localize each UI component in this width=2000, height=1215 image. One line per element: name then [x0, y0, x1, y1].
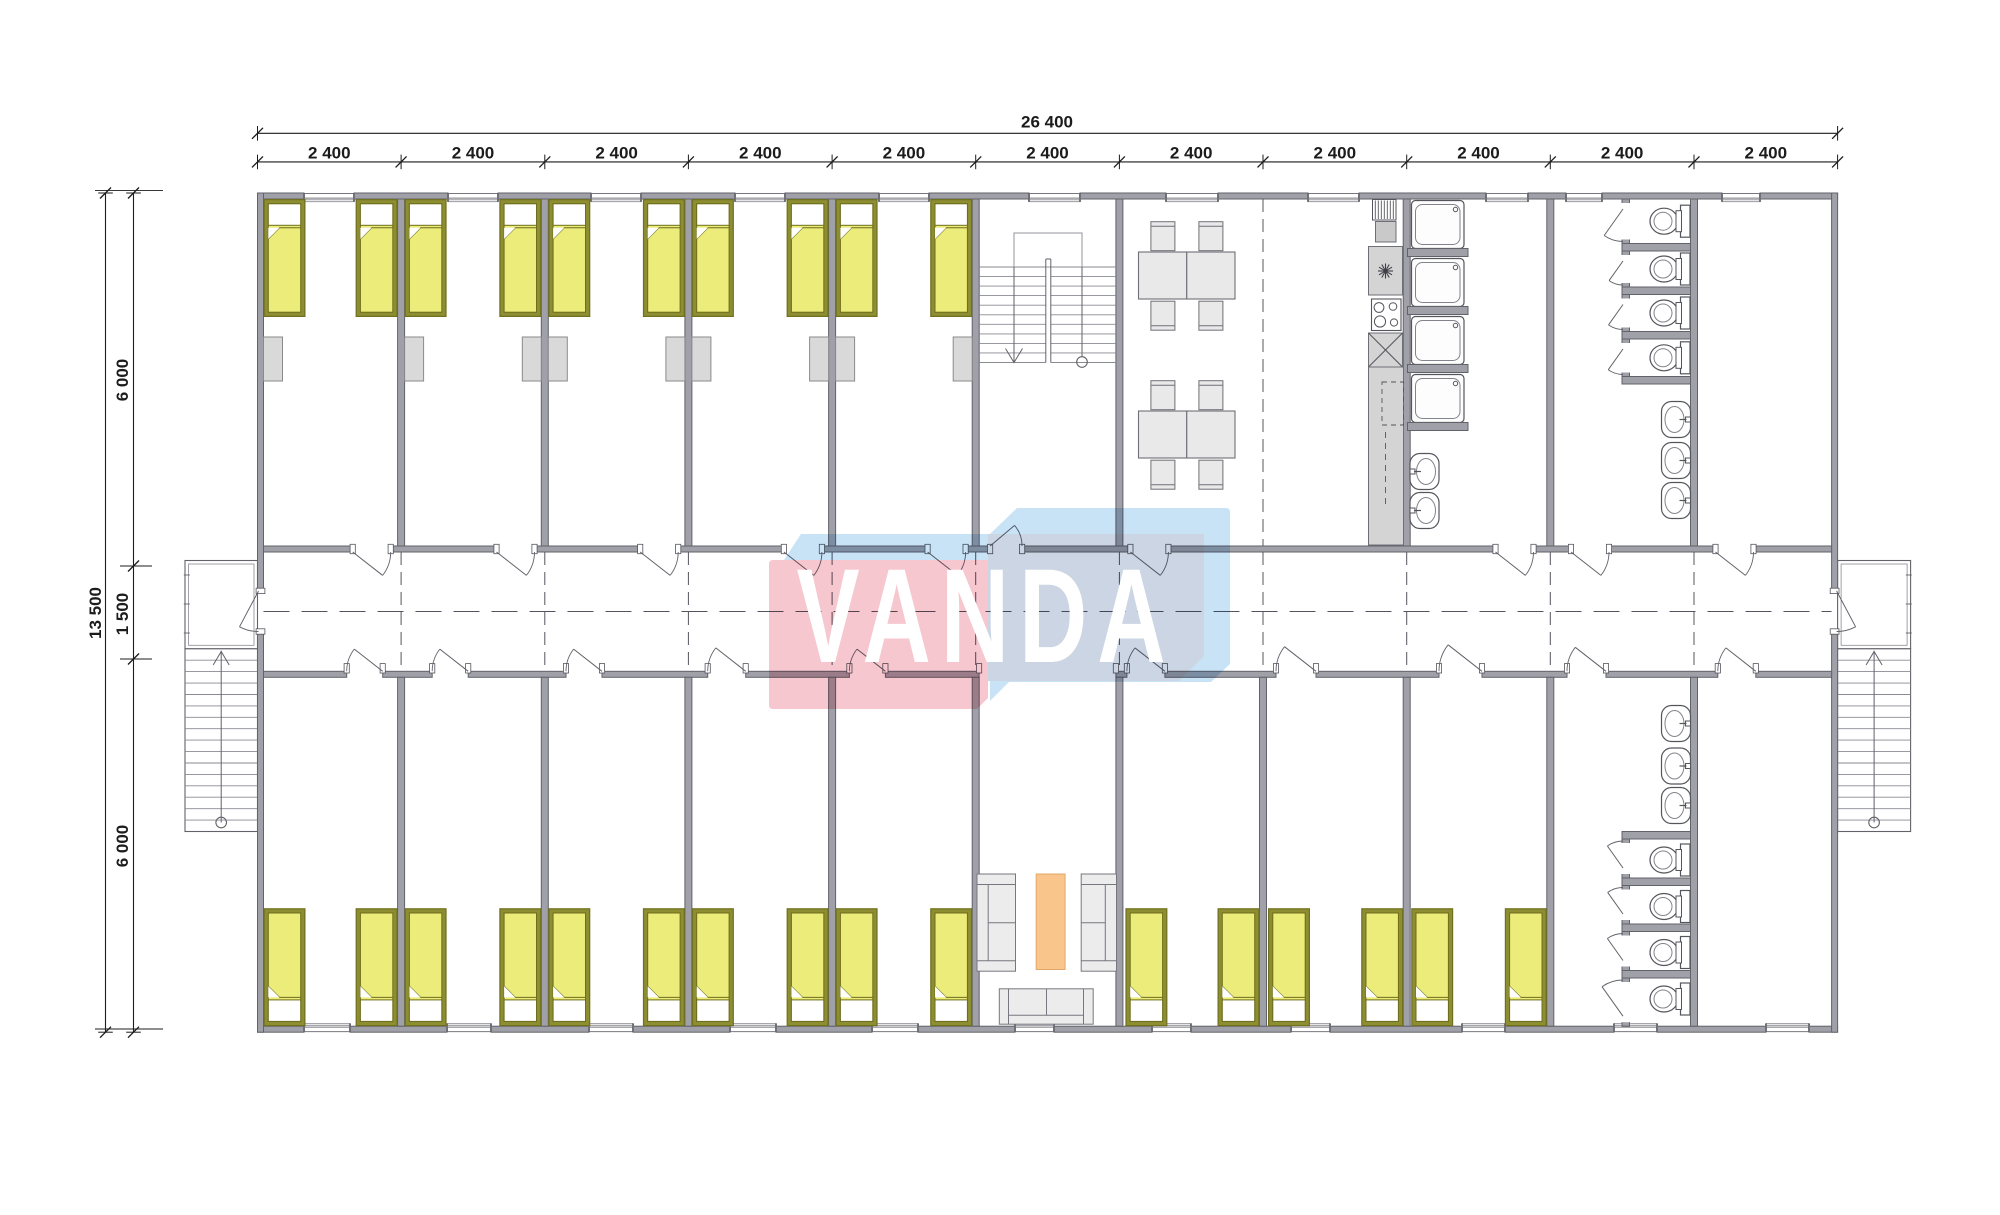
svg-text:2 400: 2 400: [1026, 144, 1069, 163]
svg-text:2 400: 2 400: [595, 144, 638, 163]
svg-text:2 400: 2 400: [883, 144, 926, 163]
svg-text:6 000: 6 000: [113, 825, 132, 868]
svg-text:2 400: 2 400: [452, 144, 495, 163]
svg-text:6 000: 6 000: [113, 359, 132, 402]
svg-text:2 400: 2 400: [1314, 144, 1357, 163]
svg-text:1 500: 1 500: [113, 593, 132, 636]
svg-text:2 400: 2 400: [1745, 144, 1788, 163]
svg-text:2 400: 2 400: [308, 144, 351, 163]
svg-text:2 400: 2 400: [1457, 144, 1500, 163]
svg-text:2 400: 2 400: [1601, 144, 1644, 163]
svg-text:13 500: 13 500: [86, 587, 105, 639]
svg-text:VANDA: VANDA: [797, 542, 1176, 691]
svg-text:2 400: 2 400: [1170, 144, 1213, 163]
svg-text:2 400: 2 400: [739, 144, 782, 163]
svg-text:26 400: 26 400: [1021, 113, 1073, 132]
